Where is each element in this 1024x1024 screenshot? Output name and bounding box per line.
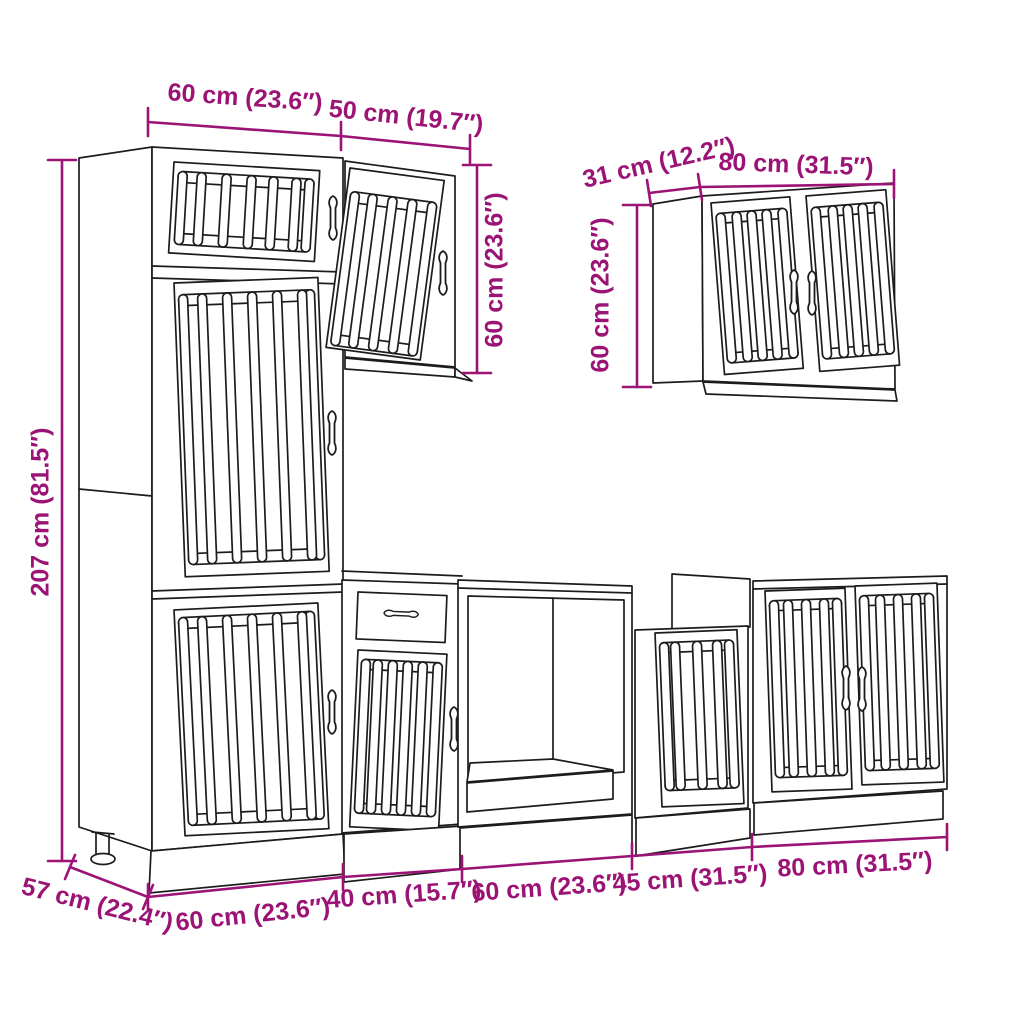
door-handle-icon <box>858 667 866 711</box>
dim-label: 60 cm (23.6″) <box>481 192 509 347</box>
tall-cabinet-middle-door <box>174 277 329 576</box>
tall-cabinet-top-door <box>169 162 320 261</box>
dim-wall80-height: 60 cm (23.6″) <box>587 205 651 387</box>
oven-cabinet-60-drawing <box>458 580 632 869</box>
base-cabinet-45-drawing <box>635 574 750 856</box>
base-cabinet-80-left-door <box>765 588 852 792</box>
dim-label: 50 cm (19.7″) <box>328 95 485 139</box>
wall-cabinet-50-drawing <box>326 161 472 381</box>
base-cabinet-40-door <box>350 650 447 831</box>
base-cabinet-40-drawing <box>342 571 462 882</box>
door-handle-icon <box>808 271 816 315</box>
dim-label: 80 cm (31.5″) <box>718 148 874 181</box>
dim-label: 60 cm (23.6″) <box>471 868 628 907</box>
tall-cabinet-drawing <box>79 147 345 893</box>
base-cabinet-80-right-door <box>855 583 944 785</box>
wall-cabinet-50-underside-wedge <box>455 368 472 381</box>
dim-wall50-width: 50 cm (19.7″) <box>328 95 485 163</box>
kitchen-dimension-diagram: 60 cm (23.6″) 50 cm (19.7″) 60 cm (23.6″… <box>0 0 1024 1024</box>
dim-label: 60 cm (23.6″) <box>167 78 324 117</box>
tall-cabinet-side-panel <box>79 147 152 851</box>
tall-cabinet-bottom-door <box>174 603 329 836</box>
door-handle-icon <box>329 196 337 240</box>
oven-cabinet-opening <box>468 596 624 784</box>
dim-wall50-height: 60 cm (23.6″) <box>463 165 509 373</box>
dim-label: 80 cm (31.5″) <box>777 847 933 883</box>
cabinet-line-art <box>79 147 947 893</box>
dim-label: 60 cm (23.6″) <box>587 217 615 372</box>
dim-label: 45 cm (31.5″) <box>612 859 769 898</box>
diagram-canvas: 60 cm (23.6″) 50 cm (19.7″) 60 cm (23.6″… <box>0 0 1024 1024</box>
wall-cabinet-80-right-door <box>806 190 900 372</box>
dim-label: 31 cm (12.2″) <box>580 132 737 194</box>
countertop-edge <box>342 571 462 576</box>
base-cabinet-40-drawer <box>356 592 447 643</box>
dim-tall-width: 60 cm (23.6″) <box>148 78 341 150</box>
door-handle-icon <box>790 270 798 314</box>
door-handle-icon <box>328 411 336 455</box>
base-cabinet-80-drawing <box>753 576 947 835</box>
wall-cabinet-80-left-door <box>711 197 803 375</box>
base-cabinet-45-door <box>655 630 744 807</box>
door-handle-icon <box>450 707 458 751</box>
dim-label: 207 cm (81.5″) <box>27 427 55 596</box>
door-handle-icon <box>439 251 447 295</box>
dim-label: 60 cm (23.6″) <box>174 893 331 937</box>
drawer-handle-icon <box>384 610 419 617</box>
wall-cabinet-80-side-panel <box>653 196 703 383</box>
back-panel <box>672 574 750 629</box>
dim-tall-height: 207 cm (81.5″) <box>27 160 76 861</box>
door-handle-icon <box>328 690 336 734</box>
wall-cabinet-80-drawing <box>653 183 900 401</box>
door-handle-icon <box>842 666 850 710</box>
